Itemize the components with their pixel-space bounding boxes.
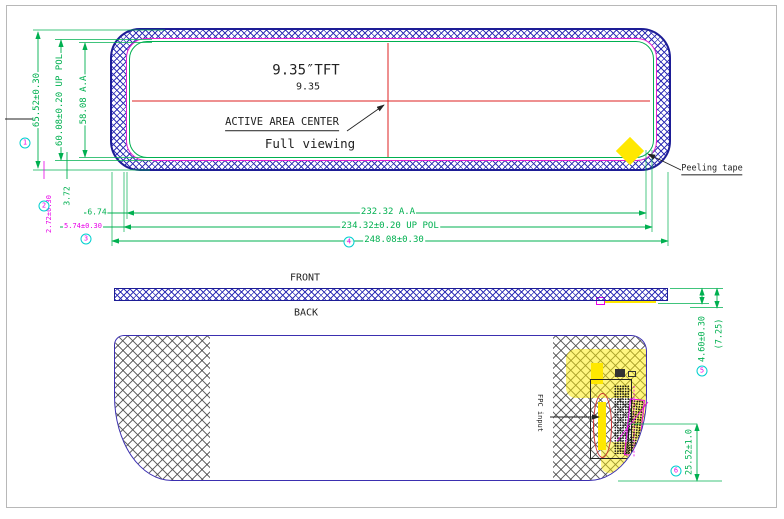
- dim-fpc-position: 25.52±1.0: [685, 428, 694, 476]
- dim-6-74: 6.74: [86, 209, 107, 218]
- size-value-label: 9.35: [296, 82, 320, 93]
- engineering-drawing-canvas: 9.35″TFT 9.35 ACTIVE AREA CENTER Full vi…: [0, 0, 784, 519]
- dim-thickness: 4.60±0.30: [698, 315, 707, 363]
- balloon-5-74: 3: [81, 234, 92, 245]
- fpc-black-chip: [615, 369, 625, 377]
- dim-5-74: 5.74±0.30: [63, 223, 103, 231]
- dim-thickness-ref: (7.25): [715, 318, 724, 351]
- front-view-active-area-boundary: [129, 41, 654, 158]
- dim-3-72: 3.72: [64, 185, 73, 206]
- fpc-black-chip-2: [628, 371, 636, 377]
- tft-size-label: 9.35″TFT: [272, 63, 339, 78]
- balloon-width-outer: 4: [344, 237, 355, 248]
- back-view-panel-outline: [114, 335, 647, 481]
- front-view-panel-outline: [110, 28, 671, 171]
- active-area-center-label: ACTIVE AREA CENTER: [225, 117, 339, 131]
- dim-height-aa: 58.08 A.A: [80, 75, 90, 126]
- dim-width-pol: 234.32±0.20 UP POL: [340, 222, 440, 232]
- dim-height-pol: 60.08±0.20 UP POL: [56, 53, 66, 147]
- front-view-pol-boundary: [126, 38, 657, 161]
- full-viewing-label: Full viewing: [265, 137, 355, 151]
- balloon-height-outer: 1: [20, 138, 31, 149]
- dim-width-outer: 248.08±0.30: [363, 236, 425, 246]
- balloon-thickness: 5: [697, 366, 708, 377]
- balloon-fpc: 6: [671, 466, 682, 477]
- fpc-input-label: FPC input: [535, 394, 543, 432]
- fpc-yellow-bar: [598, 402, 606, 450]
- dim-2-72: 2.72±0.30: [46, 194, 54, 234]
- back-label: BACK: [294, 308, 318, 319]
- peeling-tape-label: Peeling tape: [681, 164, 742, 175]
- side-view-panel: [114, 288, 668, 301]
- front-label: FRONT: [290, 273, 320, 284]
- balloon-2-72: 2: [39, 201, 50, 212]
- dim-width-aa: 232.32 A.A: [360, 208, 416, 218]
- dim-height-outer: 65.52±0.30: [33, 72, 43, 128]
